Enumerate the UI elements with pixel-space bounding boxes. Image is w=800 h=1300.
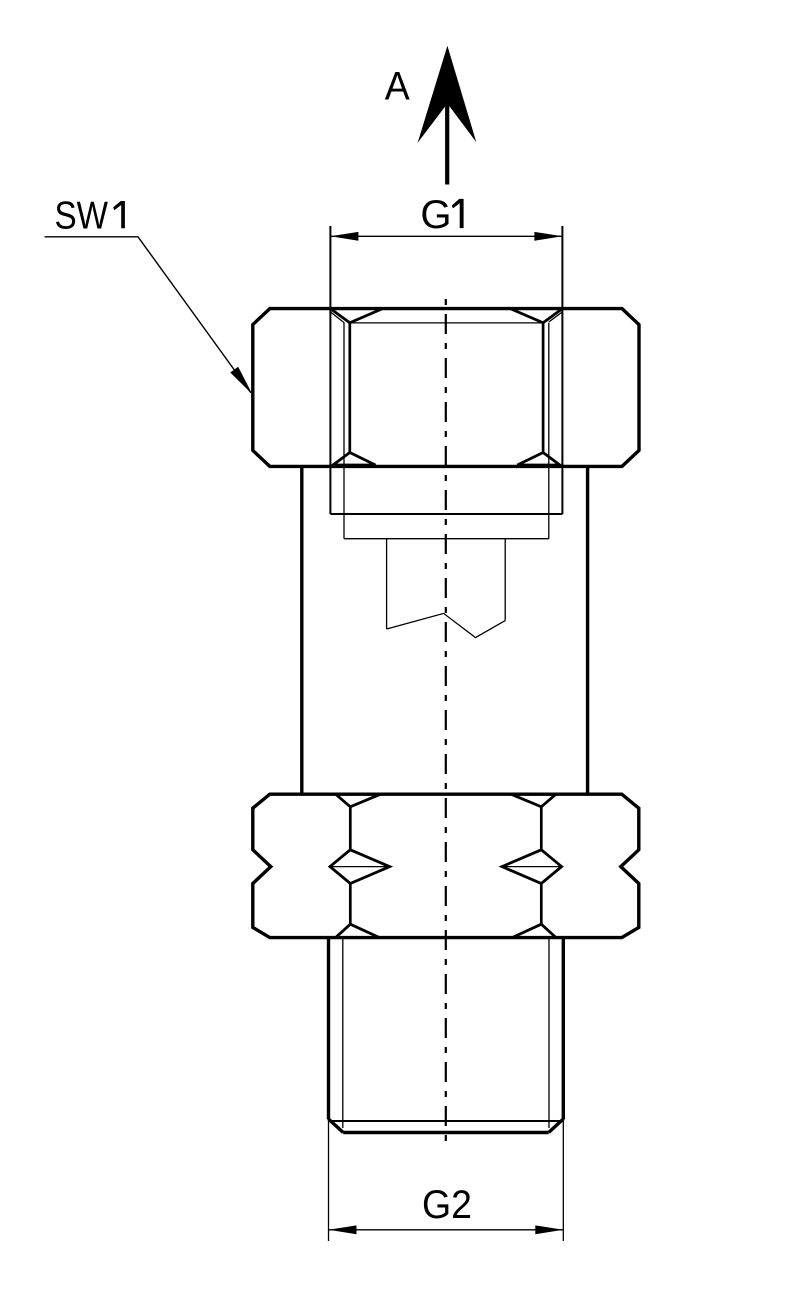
svg-text:G: G xyxy=(420,193,451,237)
svg-text:G2: G2 xyxy=(422,1183,472,1227)
svg-text:SW: SW xyxy=(55,194,109,237)
svg-text:A: A xyxy=(385,64,411,108)
